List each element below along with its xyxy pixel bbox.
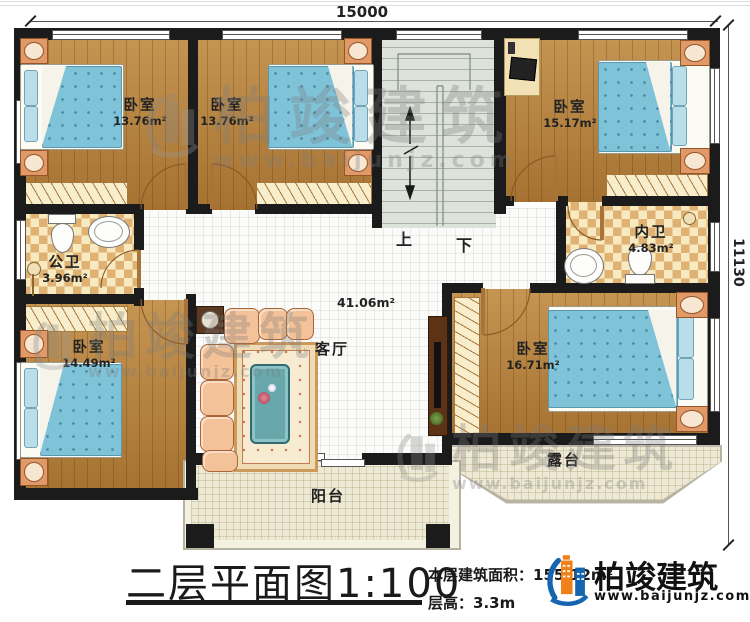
door-arc <box>141 299 186 344</box>
room-area: 13.76m² <box>113 115 166 128</box>
title-underline <box>126 600 422 605</box>
living-room-area: 41.06m² <box>326 295 406 310</box>
floor-area-label: 本层建筑面积： <box>428 566 533 584</box>
stair-arrow-head <box>406 108 414 120</box>
balcony-label: 阳台 <box>298 485 358 506</box>
room-name: 公卫 <box>49 255 82 272</box>
door-arc <box>212 164 257 209</box>
door-arc <box>483 288 530 335</box>
room-label-ensuite-bath: 内卫 4.83m² <box>606 225 696 255</box>
floor-height-label: 层高： <box>428 594 473 612</box>
doors-overlay <box>0 0 750 622</box>
stair-arrow-head <box>406 186 414 198</box>
floor-plan: 15000 11130 <box>0 0 750 622</box>
room-name: 内卫 <box>635 225 668 242</box>
room-area: 13.76m² <box>200 115 253 128</box>
room-area: 3.96m² <box>42 272 87 285</box>
room-area: 16.71m² <box>506 359 559 372</box>
room-name: 卧室 <box>211 98 244 115</box>
room-label-bedroom-bl: 卧室 14.49m² <box>44 340 134 370</box>
stair-arrow-break <box>404 146 418 154</box>
brand-url: www.baijunjz.com <box>594 589 750 604</box>
dimension-top-label: 15000 <box>327 3 397 21</box>
floor-height-value: 3.3m <box>473 594 515 612</box>
room-name: 卧室 <box>554 100 587 117</box>
dimension-right-label: 11130 <box>730 238 746 287</box>
door-arc <box>511 156 556 201</box>
room-label-bedroom-br: 卧室 16.71m² <box>488 342 578 372</box>
room-area: 14.49m² <box>62 357 115 370</box>
room-label-bedroom-tl: 卧室 13.76m² <box>95 98 185 128</box>
door-arc <box>141 164 186 209</box>
room-label-bedroom-tm: 卧室 13.76m² <box>182 98 272 128</box>
room-label-bedroom-tr: 卧室 15.17m² <box>525 100 615 130</box>
door-arc <box>101 250 139 288</box>
brand-logo-icon <box>546 550 592 614</box>
floor-height-line: 层高：3.3m <box>428 592 515 613</box>
living-room-name: 客厅 <box>302 338 362 359</box>
stair-landing-outline <box>398 54 470 90</box>
stair-divider <box>437 86 443 226</box>
stairs-up-label: 上 <box>392 226 416 250</box>
room-label-public-bath: 公卫 3.96m² <box>25 255 105 285</box>
room-name: 卧室 <box>124 98 157 115</box>
terrace-label: 露台 <box>534 449 594 470</box>
stairs-down-label: 下 <box>452 232 476 256</box>
door-arc <box>568 206 602 240</box>
room-area: 15.17m² <box>543 117 596 130</box>
room-area: 4.83m² <box>628 242 673 255</box>
room-name: 卧室 <box>73 340 106 357</box>
room-name: 卧室 <box>517 342 550 359</box>
